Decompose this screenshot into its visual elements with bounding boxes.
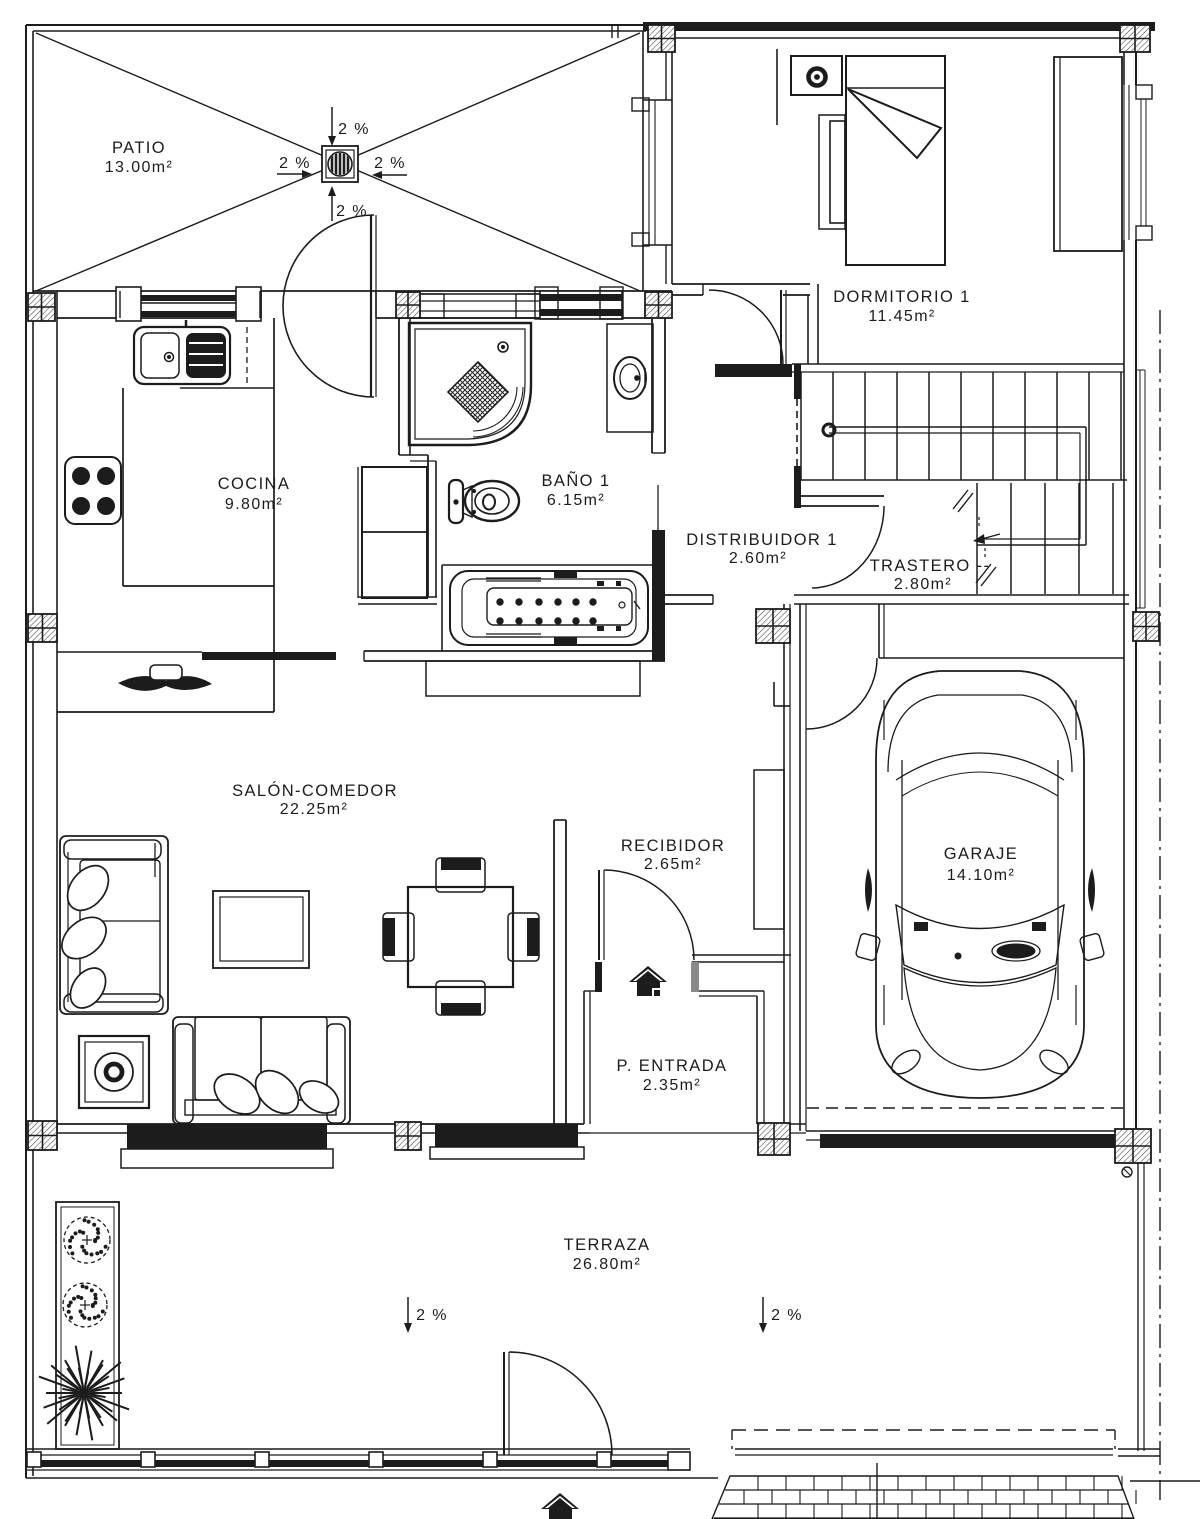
svg-text:22.25m²: 22.25m² — [280, 801, 349, 818]
svg-text:TRASTERO --: TRASTERO -- — [870, 557, 991, 575]
svg-text:2 %: 2 % — [374, 155, 406, 172]
svg-text:RECIBIDOR: RECIBIDOR — [621, 837, 725, 855]
svg-text:11.45m²: 11.45m² — [868, 308, 935, 325]
svg-text:2.80m²: 2.80m² — [894, 576, 952, 593]
svg-text:9.80m²: 9.80m² — [225, 496, 283, 513]
svg-text:PATIO: PATIO — [112, 139, 166, 157]
svg-text:2 %: 2 % — [279, 155, 311, 172]
svg-text:26.80m²: 26.80m² — [573, 1256, 642, 1273]
svg-text:SALÓN-COMEDOR: SALÓN-COMEDOR — [232, 781, 398, 800]
svg-text:2 %: 2 % — [338, 121, 370, 138]
svg-text:14.10m²: 14.10m² — [947, 867, 1016, 884]
svg-text:2 %: 2 % — [416, 1307, 448, 1324]
svg-text:GARAJE: GARAJE — [944, 845, 1018, 863]
svg-text:BAÑO 1: BAÑO 1 — [542, 470, 611, 490]
svg-text:P. ENTRADA: P. ENTRADA — [617, 1057, 728, 1075]
svg-text:2.35m²: 2.35m² — [643, 1077, 701, 1094]
svg-text:2.65m²: 2.65m² — [644, 856, 702, 873]
svg-text:13.00m²: 13.00m² — [105, 159, 174, 176]
svg-text:2.60m²: 2.60m² — [729, 550, 787, 567]
svg-text:COCINA: COCINA — [218, 475, 291, 493]
svg-text:2 %: 2 % — [771, 1307, 803, 1324]
svg-text:DORMITORIO 1: DORMITORIO 1 — [833, 288, 971, 306]
svg-text:DISTRIBUIDOR 1: DISTRIBUIDOR 1 — [686, 531, 838, 549]
svg-text:6.15m²: 6.15m² — [547, 492, 605, 509]
svg-text:TERRAZA: TERRAZA — [564, 1236, 651, 1254]
